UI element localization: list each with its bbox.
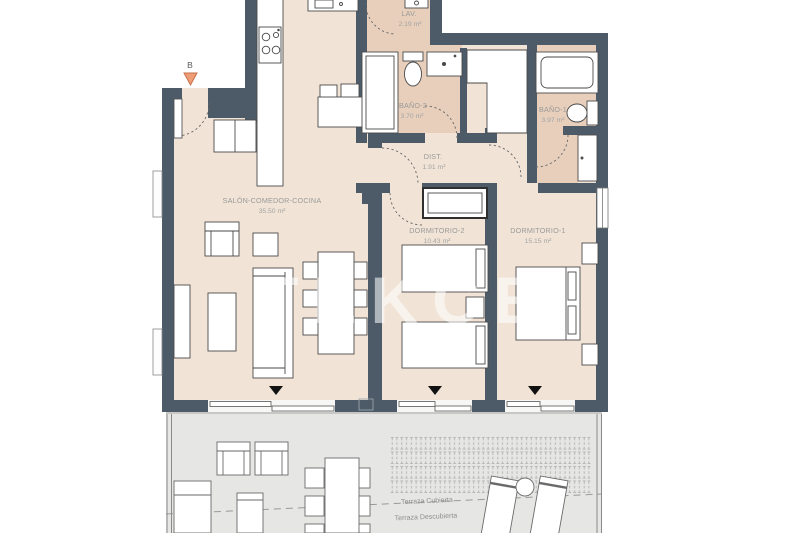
faucet-icon xyxy=(454,55,456,57)
pillow xyxy=(568,272,576,300)
toilet-bowl xyxy=(405,62,422,86)
terrace-table xyxy=(325,458,359,533)
toilet-tank xyxy=(403,52,423,61)
room-area-lav: 2.19 m² xyxy=(398,21,422,28)
room-label-salon: SALÓN-COMEDOR-COCINA xyxy=(223,196,322,205)
terrace-armchair xyxy=(217,442,250,475)
room-label-lav: LAV. xyxy=(401,9,416,18)
entry-marker-label: B xyxy=(187,60,193,70)
terrace-chair xyxy=(305,524,324,533)
toilet-bowl xyxy=(567,104,587,122)
wall-exterior-left xyxy=(162,88,174,412)
sideboard xyxy=(174,285,190,358)
side-table xyxy=(253,233,278,256)
slider-pane xyxy=(541,406,574,411)
room-label-dist: DIST. xyxy=(424,152,443,161)
room-label-bano2: BAÑO-2 xyxy=(399,101,427,110)
room-label-bano1: BAÑO-1 xyxy=(539,105,567,114)
terrace-sofa xyxy=(174,481,211,533)
entry-door-leaf xyxy=(174,99,182,138)
floorplan-drawing: TEKCE B SALÓN-COMEDOR-COCINA 35.50 m² LA… xyxy=(0,0,800,533)
terrace-round-table xyxy=(516,478,534,496)
floor-bath1-vestibule xyxy=(535,135,578,183)
coffee-table xyxy=(208,293,236,351)
bathtub-inner xyxy=(541,57,593,88)
room-area-salon: 35.50 m² xyxy=(259,208,287,215)
slider-pane xyxy=(435,406,471,411)
kitchen-island xyxy=(318,97,363,127)
room-label-dorm1: DORMITORIO-1 xyxy=(510,226,565,235)
pillow xyxy=(568,306,576,334)
wall-entry-block xyxy=(208,88,257,118)
wardrobe-handle-icon xyxy=(581,157,583,159)
room-area-bano2: 3.70 m² xyxy=(400,113,424,120)
room-area-dist: 1.91 m² xyxy=(422,164,446,171)
exterior-top-left xyxy=(0,0,251,88)
terrace-chair xyxy=(305,468,324,488)
terrace-chaise xyxy=(237,493,263,533)
slider-pane xyxy=(399,402,435,407)
room-area-dorm1: 15.15 m² xyxy=(525,238,553,245)
wall-jog xyxy=(356,133,366,143)
nightstand xyxy=(582,344,598,365)
room-label-dorm2: DORMITORIO-2 xyxy=(409,226,464,235)
kitchen-stool xyxy=(341,84,359,98)
exterior-top-right xyxy=(436,0,608,33)
room-area-bano1: 3.97 m² xyxy=(541,117,565,124)
wall-pilaster xyxy=(153,171,162,217)
wall-laundry-right xyxy=(430,0,442,45)
wall-bath1-bottom xyxy=(563,126,608,135)
watermark-text: TEKCE xyxy=(258,263,552,337)
wardrobe-dorm2-inner xyxy=(428,193,482,213)
wall-pilaster xyxy=(153,329,162,375)
slider-pane xyxy=(272,406,334,411)
nightstand xyxy=(582,243,598,264)
floorplan-page: TEKCE B SALÓN-COMEDOR-COCINA 35.50 m² LA… xyxy=(0,0,800,533)
stove xyxy=(259,27,281,63)
wall-bath1-left xyxy=(527,45,537,183)
terrace-chair xyxy=(305,496,324,516)
wall-bath2-bottom-right xyxy=(457,133,485,143)
armchair xyxy=(205,222,239,256)
stove-knob-icon xyxy=(278,29,280,31)
slider-pane xyxy=(507,402,540,407)
wall-bath2-bottom-left xyxy=(382,133,425,143)
wall-exterior-top xyxy=(436,33,608,45)
sink-drain-icon xyxy=(442,62,445,65)
slider-pane xyxy=(210,402,271,407)
wall-dorm2-top-left xyxy=(356,183,390,193)
shower-tray xyxy=(366,56,394,129)
room-area-dorm2: 10.43 m² xyxy=(424,238,452,245)
terrace-armchair xyxy=(255,442,288,475)
wall-dist-left-top xyxy=(368,133,382,148)
toilet-tank xyxy=(587,101,598,125)
